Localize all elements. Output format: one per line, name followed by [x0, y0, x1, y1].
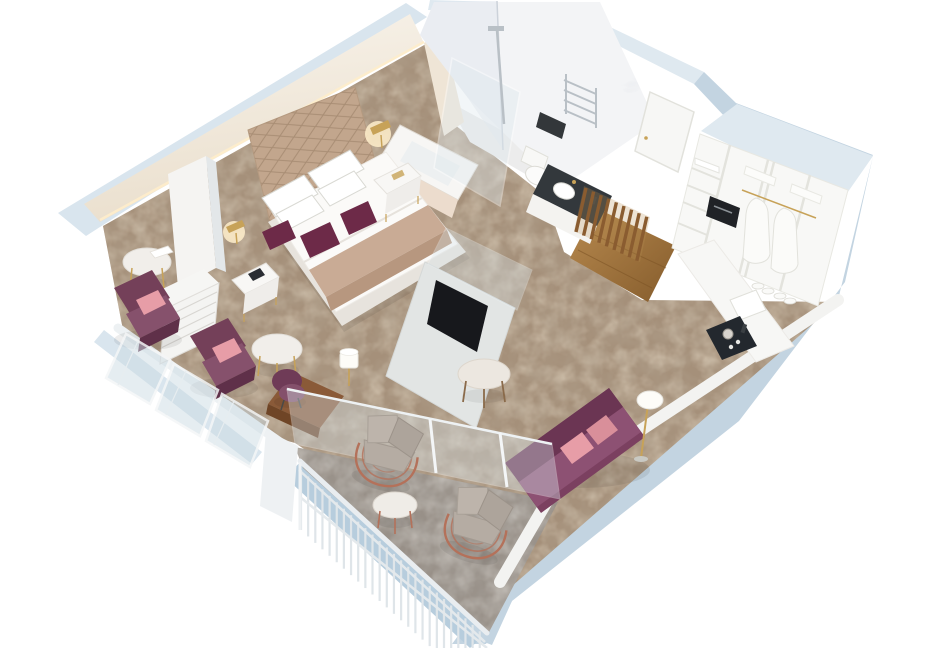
shower-head [488, 26, 504, 31]
floorplan-3d-render [0, 0, 944, 648]
faucet [572, 180, 576, 184]
render-stage [0, 0, 944, 648]
kettle [723, 329, 733, 339]
window-pier [260, 430, 298, 522]
door-handle [644, 136, 648, 140]
